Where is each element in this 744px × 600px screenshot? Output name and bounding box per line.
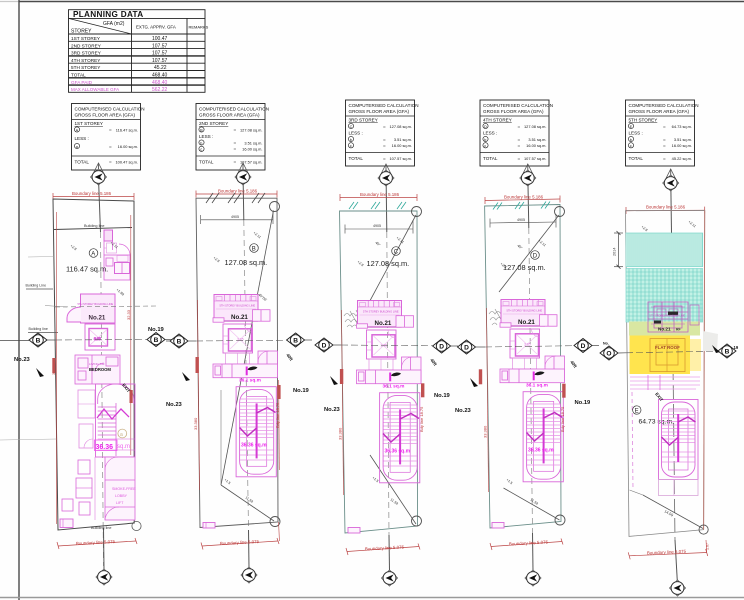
- svg-text:11.59: 11.59: [529, 498, 538, 506]
- svg-text:No.23: No.23: [14, 357, 31, 363]
- svg-text:GROSS FLOOR AREA (GFA): GROSS FLOOR AREA (GFA): [199, 113, 260, 118]
- svg-text:Boundary line 5.186: Boundary line 5.186: [72, 191, 112, 196]
- svg-text:No.23: No.23: [166, 402, 183, 408]
- svg-text:B: B: [725, 349, 730, 356]
- svg-text:GFA (m2): GFA (m2): [103, 21, 125, 27]
- svg-text:BEDROOM: BEDROOM: [89, 367, 111, 372]
- svg-text:Building line: Building line: [84, 224, 104, 228]
- svg-text:Boundary line 5.075: Boundary line 5.075: [220, 539, 260, 546]
- svg-text:33.380: 33.380: [193, 417, 198, 430]
- svg-text:D: D: [322, 343, 327, 350]
- svg-text:562.22: 562.22: [152, 87, 168, 93]
- svg-text:1.67: 1.67: [706, 543, 710, 550]
- svg-text:LESS :: LESS :: [75, 136, 89, 141]
- svg-text:5TH STOREY BUILDING LINE: 5TH STOREY BUILDING LINE: [650, 314, 686, 318]
- svg-text:COMPUTERISED CALCULATION: COMPUTERISED CALCULATION: [483, 103, 553, 108]
- svg-text:+1.5: +1.5: [505, 478, 513, 486]
- svg-text:3.51 sq.m.: 3.51 sq.m.: [394, 137, 412, 142]
- svg-text:100.47 sq.m.: 100.47 sq.m.: [116, 160, 139, 165]
- svg-text:5TH STOREY: 5TH STOREY: [71, 65, 101, 70]
- svg-text:=: =: [109, 160, 112, 165]
- svg-text:107.57 sq.m.: 107.57 sq.m.: [390, 156, 413, 161]
- svg-text:127.08 sq.m.: 127.08 sq.m.: [524, 124, 547, 129]
- svg-text:107.57 sq.m.: 107.57 sq.m.: [524, 156, 547, 161]
- svg-text:LESS :: LESS :: [483, 131, 497, 136]
- svg-text:Boundary line 5.186: Boundary line 5.186: [504, 195, 544, 200]
- svg-text:+2.11: +2.11: [537, 239, 546, 248]
- svg-text:TOTAL: TOTAL: [71, 73, 86, 78]
- svg-text:EXTG. APPRV. GFA: EXTG. APPRV. GFA: [136, 25, 176, 30]
- svg-text:32.33: 32.33: [126, 309, 131, 320]
- svg-text:+2.8: +2.8: [69, 244, 77, 252]
- svg-text:E: E: [630, 125, 633, 129]
- svg-text:LESS :: LESS :: [349, 131, 363, 136]
- svg-text:36.36: 36.36: [96, 444, 114, 451]
- svg-text:3.05: 3.05: [94, 337, 101, 341]
- svg-text:1ST STOREY: 1ST STOREY: [75, 121, 103, 126]
- svg-text:2014: 2014: [613, 248, 617, 256]
- svg-text:16.00 sq.m.: 16.00 sq.m.: [392, 143, 412, 148]
- svg-text:116.47 sq.m.: 116.47 sq.m.: [116, 127, 138, 132]
- svg-text:=: =: [518, 143, 521, 148]
- svg-text:GROSS FLOOR AREA (GFA): GROSS FLOOR AREA (GFA): [349, 109, 410, 114]
- svg-text:127.08 sq.m.: 127.08 sq.m.: [503, 263, 546, 272]
- svg-text:PLANNING DATA: PLANNING DATA: [73, 10, 143, 19]
- svg-text:3.51 sq.m.: 3.51 sq.m.: [674, 137, 692, 142]
- svg-text:No.21: No.21: [658, 327, 671, 332]
- svg-text:TOTAL: TOTAL: [349, 156, 364, 161]
- svg-text:4905: 4905: [373, 224, 381, 228]
- svg-text:16.00 sq.m.: 16.00 sq.m.: [672, 143, 692, 148]
- svg-text:+1.88: +1.88: [115, 288, 125, 297]
- svg-text:127.08 sq.m.: 127.08 sq.m.: [367, 259, 410, 268]
- svg-text:16.00 sq.m.: 16.00 sq.m.: [118, 144, 138, 149]
- svg-text:=: =: [109, 127, 112, 132]
- svg-text:Boundary line 5.186: Boundary line 5.186: [646, 205, 686, 210]
- svg-text:4905: 4905: [231, 215, 239, 219]
- svg-text:No.19: No.19: [293, 388, 310, 394]
- svg-text:45°06': 45°06': [257, 293, 268, 303]
- svg-text:GROSS FLOOR AREA (GFA): GROSS FLOOR AREA (GFA): [75, 113, 136, 118]
- svg-text:A: A: [76, 128, 79, 132]
- svg-text:Boundary line 5.186: Boundary line 5.186: [218, 189, 258, 194]
- svg-text:127.08 sq.m.: 127.08 sq.m.: [390, 124, 413, 129]
- svg-text:B: B: [154, 337, 159, 344]
- svg-text:107.57: 107.57: [152, 43, 168, 49]
- svg-text:33.380: 33.380: [338, 427, 343, 440]
- svg-text:64.73 sq.m.: 64.73 sq.m.: [672, 124, 692, 129]
- svg-text:No.: No.: [603, 342, 609, 346]
- svg-text:107.57: 107.57: [152, 58, 168, 64]
- svg-text:Building Line: Building Line: [26, 284, 47, 288]
- svg-text:Boundary line 5.075: Boundary line 5.075: [76, 539, 116, 546]
- svg-text:=: =: [234, 140, 237, 145]
- svg-text:40ft: 40ft: [285, 353, 294, 363]
- svg-text:=: =: [383, 137, 386, 142]
- svg-text:TOTAL: TOTAL: [629, 156, 644, 161]
- svg-text:COMPUTERISED CALCULATION: COMPUTERISED CALCULATION: [199, 107, 269, 112]
- svg-text:LESS :: LESS :: [629, 131, 643, 136]
- svg-text:3.51 sq.m.: 3.51 sq.m.: [244, 140, 262, 145]
- svg-text:=: =: [518, 156, 521, 161]
- svg-text:Boundary line 5.075: Boundary line 5.075: [365, 544, 405, 551]
- svg-text:MAX ALLOWABLE GFA: MAX ALLOWABLE GFA: [71, 87, 119, 92]
- svg-text:468.40: 468.40: [152, 80, 168, 86]
- svg-text:1ST STOREY: 1ST STOREY: [71, 36, 101, 41]
- svg-text:No.21: No.21: [89, 315, 106, 322]
- svg-text:EXIT: EXIT: [654, 392, 664, 403]
- svg-text:B: B: [293, 338, 298, 345]
- svg-text:=: =: [518, 137, 521, 142]
- svg-text:2ND STOREY: 2ND STOREY: [199, 121, 228, 126]
- svg-text:33.380: 33.380: [483, 425, 488, 438]
- svg-text:14.59: 14.59: [664, 509, 674, 517]
- svg-text:=: =: [383, 143, 386, 148]
- svg-text:c: c: [200, 148, 202, 152]
- svg-text:C: C: [394, 249, 399, 255]
- svg-text:D: D: [581, 343, 586, 350]
- svg-text:=: =: [383, 124, 386, 129]
- svg-text:45°: 45°: [374, 241, 381, 248]
- svg-text:B: B: [200, 128, 203, 132]
- svg-text:b: b: [630, 138, 632, 142]
- svg-text:=: =: [663, 143, 666, 148]
- svg-text:LIFT: LIFT: [116, 501, 124, 505]
- svg-text:B: B: [252, 246, 256, 252]
- svg-text:107.57: 107.57: [152, 51, 168, 57]
- svg-text:A: A: [91, 251, 95, 257]
- svg-text:45°: 45°: [516, 244, 523, 251]
- svg-text:2ND STOREY: 2ND STOREY: [71, 43, 102, 48]
- svg-text:STOREY: STOREY: [71, 29, 92, 35]
- svg-text:4TH STOREY: 4TH STOREY: [71, 58, 101, 63]
- svg-text:45.22 sq.m.: 45.22 sq.m.: [672, 156, 692, 161]
- svg-text:5TH STOREY BUILDING LINE: 5TH STOREY BUILDING LINE: [78, 302, 114, 306]
- svg-text:No.23: No.23: [455, 408, 472, 414]
- svg-text:+1.5: +1.5: [371, 476, 379, 484]
- svg-text:100.47: 100.47: [152, 36, 168, 42]
- svg-text:LOBBY: LOBBY: [115, 494, 128, 498]
- svg-text:Bdy line 18.75: Bdy line 18.75: [560, 406, 565, 432]
- svg-text:=: =: [234, 147, 237, 152]
- svg-text:+2.8: +2.8: [356, 260, 364, 268]
- svg-text:40ft: 40ft: [429, 358, 438, 368]
- svg-text:=: =: [663, 156, 666, 161]
- svg-text:+2.11: +2.11: [252, 231, 261, 240]
- svg-text:GROSS FLOOR AREA (GFA): GROSS FLOOR AREA (GFA): [629, 109, 690, 114]
- svg-text:B: B: [36, 338, 41, 345]
- svg-text:B: B: [177, 339, 182, 346]
- svg-text:16.00 sq.m.: 16.00 sq.m.: [242, 147, 262, 152]
- svg-text:No.23: No.23: [324, 407, 341, 413]
- svg-text:D: D: [439, 344, 444, 351]
- svg-text:TOTAL: TOTAL: [483, 156, 498, 161]
- svg-text:3RD STOREY: 3RD STOREY: [349, 118, 378, 123]
- svg-text:116.47 sq.m.: 116.47 sq.m.: [66, 265, 108, 274]
- svg-text:TOTAL: TOTAL: [199, 160, 214, 165]
- svg-text:+2.11: +2.11: [687, 220, 696, 229]
- svg-text:sq.m: sq.m: [117, 444, 130, 450]
- svg-text:GFA PAID: GFA PAID: [71, 80, 93, 85]
- svg-text:+1.5: +1.5: [223, 478, 231, 486]
- svg-text:COMPUTERISED CALCULATION: COMPUTERISED CALCULATION: [629, 103, 699, 108]
- svg-text:GROSS FLOOR AREA (GFA): GROSS FLOOR AREA (GFA): [483, 109, 544, 114]
- svg-text:=: =: [663, 137, 666, 142]
- svg-text:3.51 sq.m.: 3.51 sq.m.: [528, 137, 546, 142]
- svg-text:Boundary line 5.186: Boundary line 5.186: [360, 192, 400, 197]
- svg-text:=: =: [518, 124, 521, 129]
- svg-text:b: b: [350, 138, 352, 142]
- svg-text:4TH STOREY: 4TH STOREY: [483, 118, 512, 123]
- svg-text:b: b: [484, 138, 486, 142]
- svg-text:16.00 sq.m.: 16.00 sq.m.: [526, 143, 546, 148]
- svg-text:Boundary line 5.075: Boundary line 5.075: [647, 549, 687, 556]
- svg-text:4905: 4905: [517, 218, 525, 222]
- svg-text:RF: RF: [676, 328, 681, 332]
- svg-text:D: D: [533, 253, 538, 259]
- svg-text:c: c: [350, 144, 352, 148]
- svg-text:3RD STOREY: 3RD STOREY: [71, 51, 102, 56]
- svg-text:Boundary line 5.075: Boundary line 5.075: [509, 539, 549, 546]
- svg-text:D: D: [464, 345, 469, 352]
- svg-text:SMOKE-FREE: SMOKE-FREE: [112, 487, 136, 491]
- svg-text:=: =: [109, 144, 112, 149]
- svg-text:c: c: [484, 144, 486, 148]
- svg-text:11.59: 11.59: [244, 496, 253, 504]
- svg-text:LIVING RM: LIVING RM: [89, 362, 105, 366]
- svg-text:No.19: No.19: [575, 400, 592, 406]
- svg-text:+2.8: +2.8: [640, 225, 648, 233]
- svg-text:11.59: 11.59: [389, 498, 398, 506]
- svg-text:+2.11: +2.11: [109, 241, 118, 250]
- svg-text:19: 19: [734, 345, 739, 350]
- svg-text:45.22: 45.22: [154, 65, 167, 71]
- svg-text:TOTAL: TOTAL: [75, 160, 90, 165]
- svg-text:No.19: No.19: [434, 393, 451, 399]
- svg-text:=: =: [383, 156, 386, 161]
- svg-text:a: a: [120, 432, 123, 438]
- svg-text:=: =: [234, 127, 237, 132]
- svg-text:O: O: [606, 351, 611, 358]
- svg-text:C: C: [350, 125, 353, 129]
- svg-text:LESS :: LESS :: [199, 134, 213, 139]
- svg-text:127.08 sq.m.: 127.08 sq.m.: [225, 258, 268, 267]
- svg-text:40ft: 40ft: [569, 360, 578, 370]
- svg-text:+2.11: +2.11: [395, 236, 404, 245]
- svg-text:E: E: [635, 408, 639, 414]
- svg-text:c: c: [630, 144, 632, 148]
- svg-text:Building line: Building line: [29, 327, 48, 331]
- svg-text:b: b: [200, 141, 202, 145]
- svg-text:=: =: [234, 160, 237, 165]
- svg-text:COMPUTERISED CALCULATION: COMPUTERISED CALCULATION: [349, 103, 419, 108]
- svg-text:=: =: [663, 124, 666, 129]
- svg-text:127.08 sq.m.: 127.08 sq.m.: [240, 127, 263, 132]
- svg-text:+2.8: +2.8: [212, 256, 220, 264]
- svg-text:468.40: 468.40: [152, 73, 168, 79]
- svg-text:COMPUTERISED CALCULATION: COMPUTERISED CALCULATION: [75, 107, 145, 112]
- svg-text:REMARKS: REMARKS: [189, 25, 209, 30]
- svg-text:Building line: Building line: [91, 526, 111, 530]
- svg-text:FLAT ROOF: FLAT ROOF: [655, 345, 680, 350]
- svg-text:Bdy line 18.75: Bdy line 18.75: [419, 406, 424, 432]
- svg-text:5TH STOREY: 5TH STOREY: [629, 118, 658, 123]
- svg-text:No.19: No.19: [148, 327, 165, 333]
- svg-text:D: D: [484, 125, 487, 129]
- svg-text:Bdy line 18.75: Bdy line 18.75: [275, 402, 280, 428]
